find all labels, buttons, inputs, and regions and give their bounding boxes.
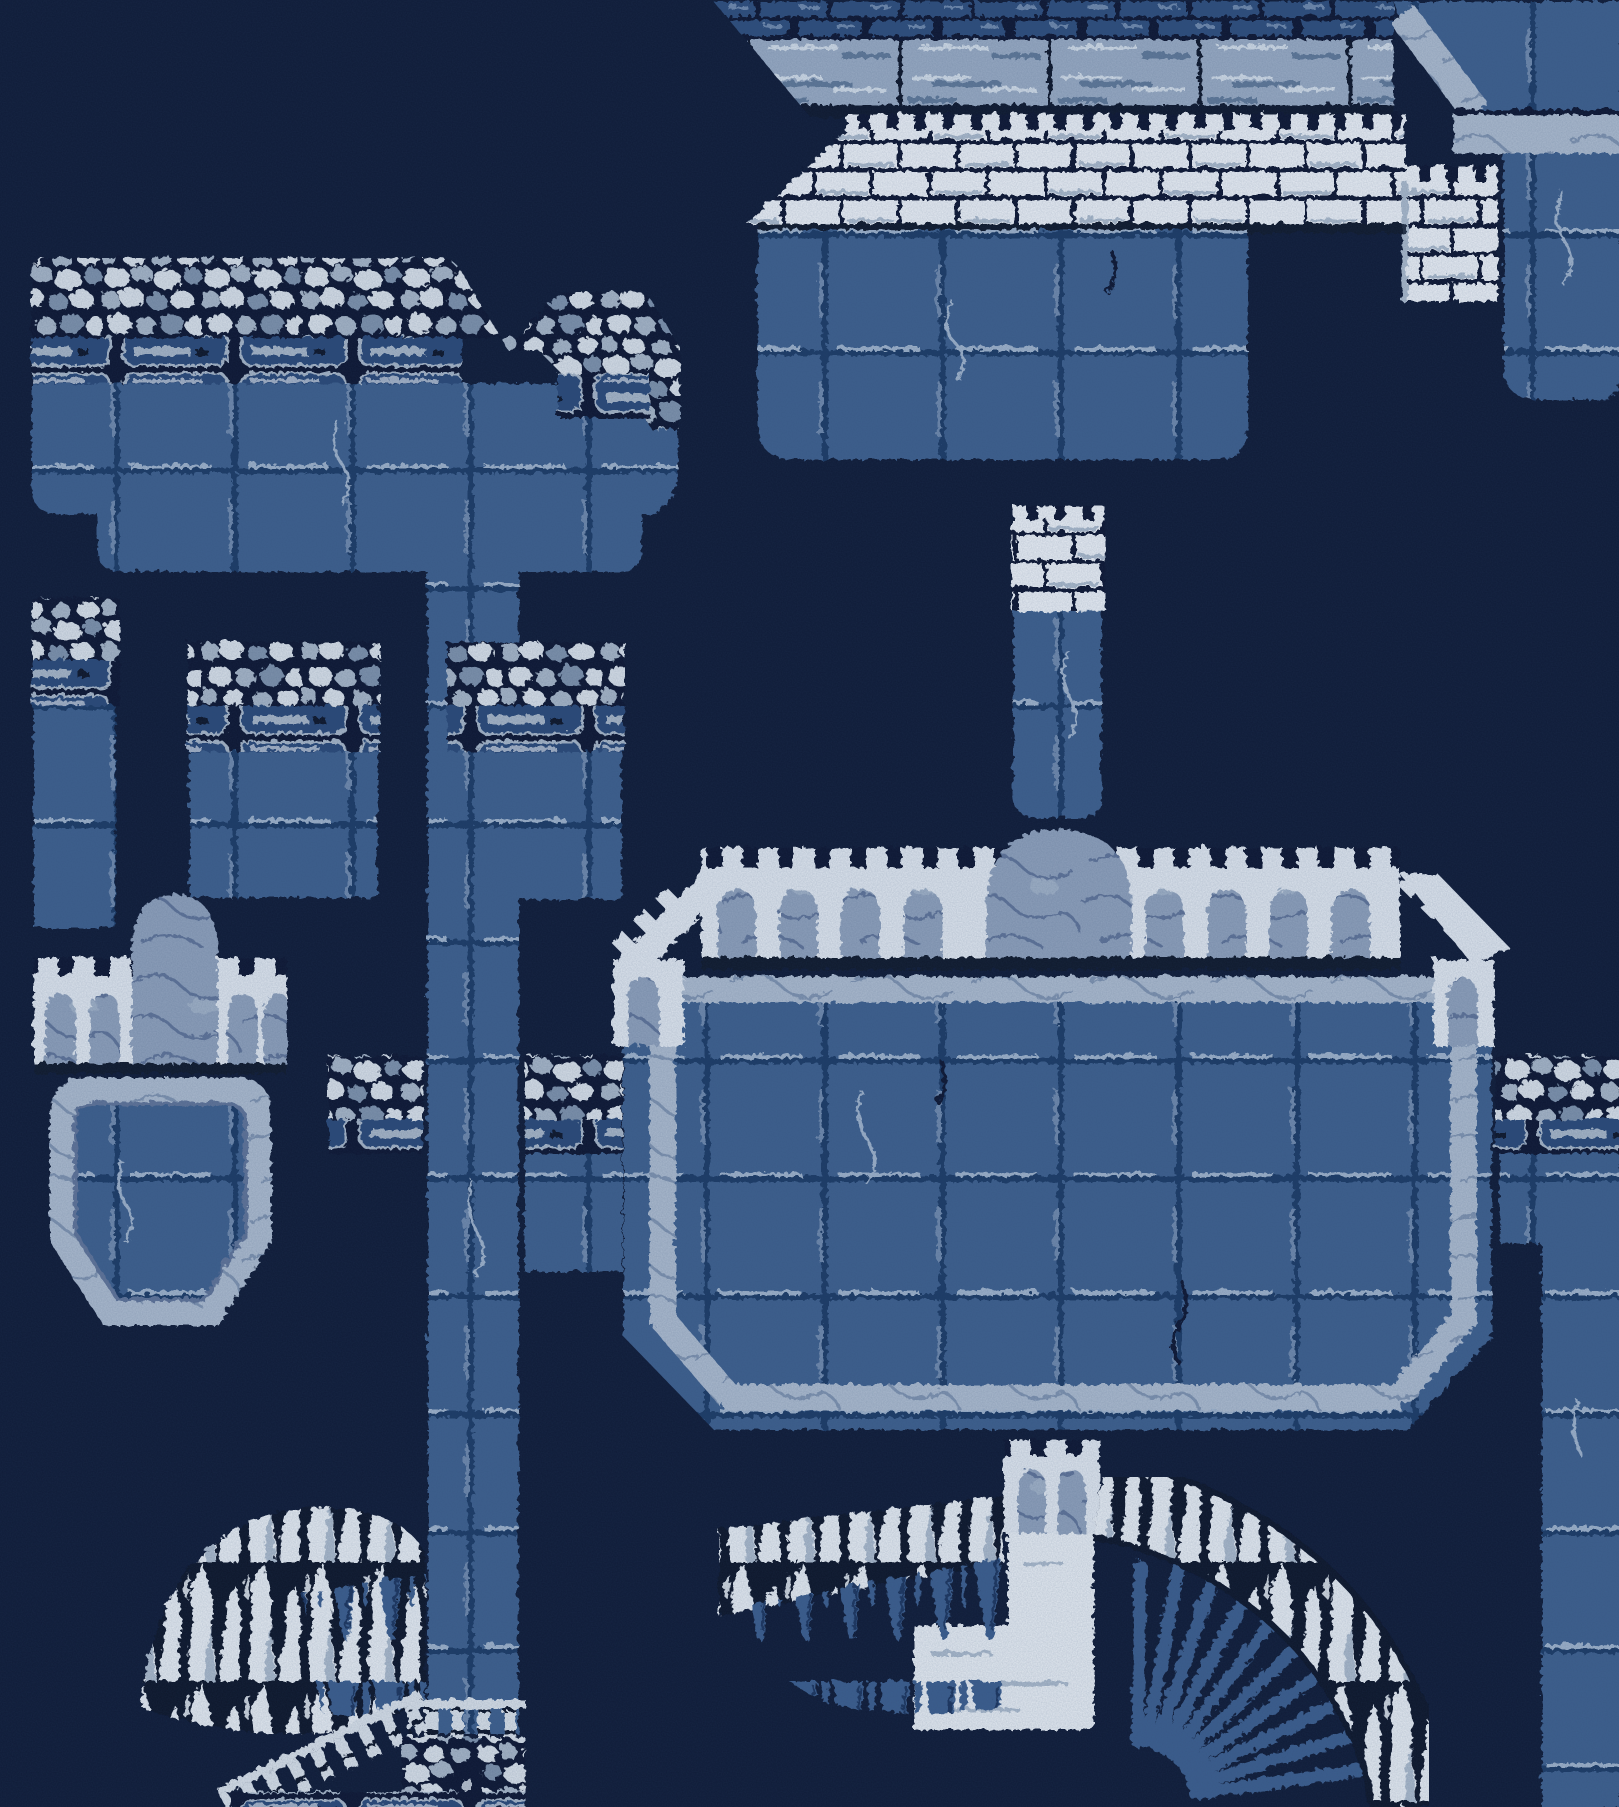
- level-map: Castle dungeon level map - blue night pi…: [0, 0, 1619, 1807]
- noise-overlay: [0, 0, 1619, 1807]
